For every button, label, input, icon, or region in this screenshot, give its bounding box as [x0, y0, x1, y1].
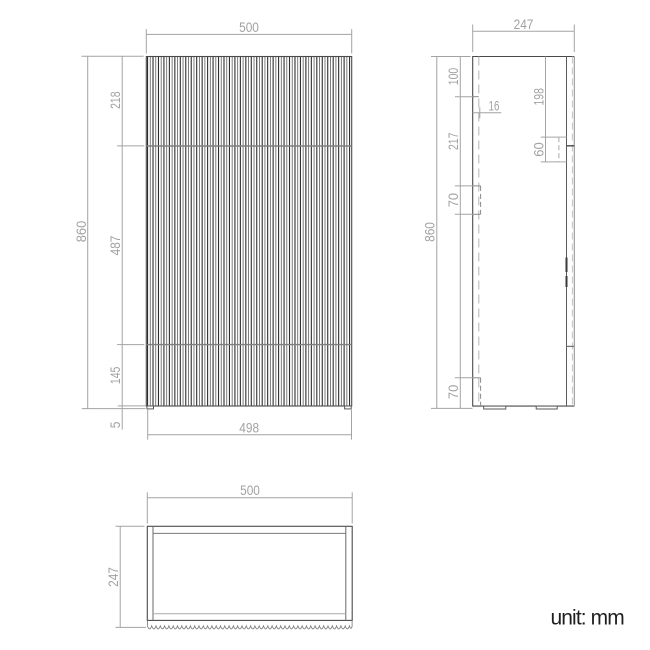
svg-text:498: 498 — [239, 420, 259, 436]
svg-text:217: 217 — [446, 133, 462, 150]
svg-text:70: 70 — [446, 385, 462, 399]
svg-text:198: 198 — [531, 88, 547, 105]
svg-text:500: 500 — [240, 483, 260, 499]
svg-text:145: 145 — [108, 367, 124, 384]
svg-text:60: 60 — [531, 142, 547, 156]
svg-text:16: 16 — [489, 99, 500, 115]
svg-text:500: 500 — [239, 20, 259, 36]
svg-text:487: 487 — [108, 236, 124, 256]
svg-text:247: 247 — [106, 567, 122, 587]
svg-text:860: 860 — [74, 221, 90, 243]
svg-text:100: 100 — [446, 68, 462, 85]
svg-text:5: 5 — [108, 422, 124, 429]
svg-text:218: 218 — [108, 91, 124, 108]
svg-text:70: 70 — [446, 193, 462, 207]
svg-text:unit: mm: unit: mm — [551, 607, 625, 630]
svg-text:247: 247 — [514, 17, 534, 33]
svg-text:860: 860 — [423, 222, 439, 242]
